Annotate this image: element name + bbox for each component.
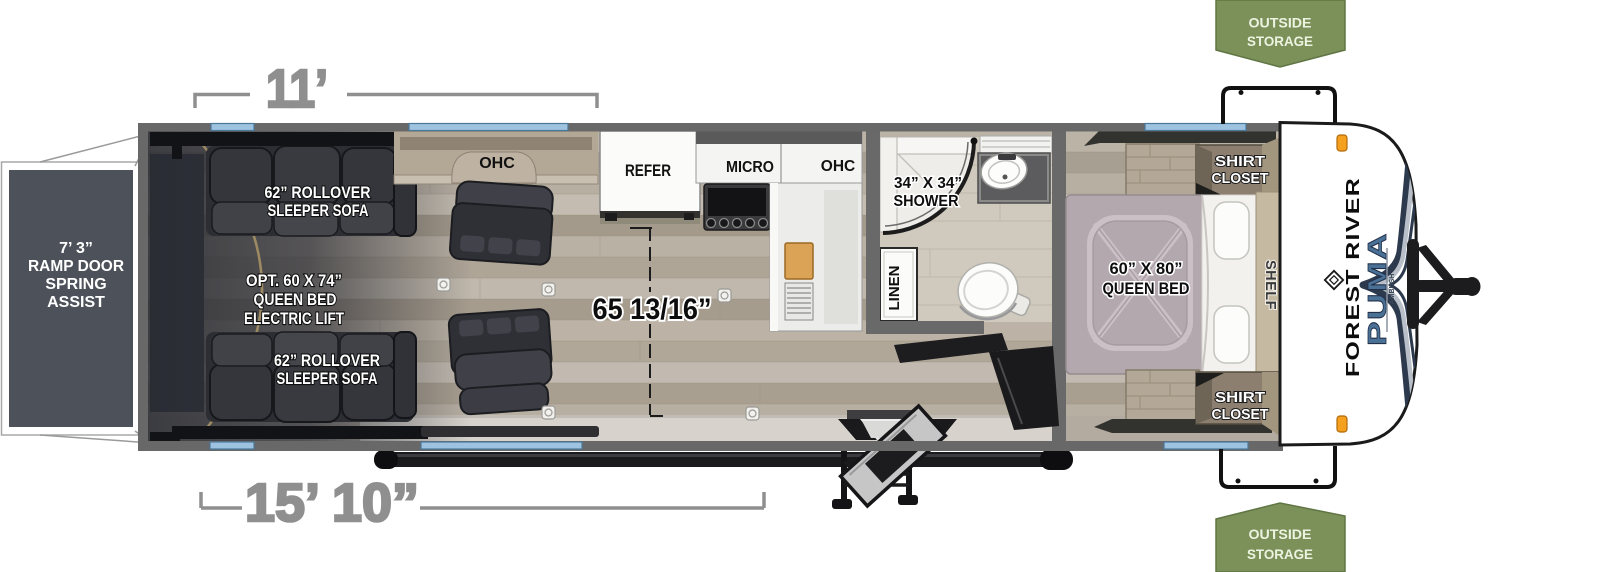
svg-text:65 13/16”: 65 13/16” (593, 293, 712, 326)
svg-text:SHIRT: SHIRT (1215, 153, 1265, 170)
svg-text:QUEEN BED: QUEEN BED (254, 290, 337, 309)
svg-text:15’ 10”: 15’ 10” (245, 473, 419, 533)
svg-text:AMBUSH: AMBUSH (1389, 274, 1396, 305)
svg-text:62” ROLLOVER: 62” ROLLOVER (274, 351, 380, 370)
svg-text:REFER: REFER (625, 162, 671, 180)
svg-text:RAMP DOOR: RAMP DOOR (28, 258, 124, 275)
svg-text:SPRING: SPRING (45, 276, 106, 293)
svg-text:FOREST RIVER: FOREST RIVER (1343, 177, 1363, 377)
svg-text:ASSIST: ASSIST (47, 294, 105, 311)
svg-text:OPT. 60 X 74”: OPT. 60 X 74” (246, 271, 342, 290)
svg-text:SLEEPER SOFA: SLEEPER SOFA (277, 369, 378, 388)
svg-text:34” X 34”: 34” X 34” (894, 175, 962, 192)
svg-text:LINEN: LINEN (886, 266, 903, 311)
svg-text:CLOSET: CLOSET (1212, 406, 1269, 423)
svg-text:OHC: OHC (821, 158, 855, 175)
svg-text:60” X 80”: 60” X 80” (1110, 260, 1183, 278)
svg-text:OUTSIDE: OUTSIDE (1249, 15, 1312, 31)
svg-text:STORAGE: STORAGE (1247, 33, 1313, 49)
svg-text:11’: 11’ (266, 59, 328, 119)
svg-text:SHELF: SHELF (1262, 260, 1278, 310)
svg-text:MICRO: MICRO (726, 159, 774, 176)
svg-text:62” ROLLOVER: 62” ROLLOVER (265, 183, 371, 202)
svg-text:SHOWER: SHOWER (894, 193, 959, 210)
svg-text:STORAGE: STORAGE (1247, 546, 1313, 562)
svg-text:SLEEPER SOFA: SLEEPER SOFA (268, 201, 369, 220)
svg-text:ELECTRIC LIFT: ELECTRIC LIFT (244, 309, 344, 328)
svg-text:OHC: OHC (479, 155, 515, 172)
svg-text:QUEEN BED: QUEEN BED (1103, 280, 1190, 298)
svg-text:7’ 3”: 7’ 3” (59, 240, 93, 257)
svg-text:CLOSET: CLOSET (1212, 170, 1269, 187)
svg-text:SHIRT: SHIRT (1215, 389, 1265, 406)
svg-text:OUTSIDE: OUTSIDE (1249, 526, 1312, 542)
